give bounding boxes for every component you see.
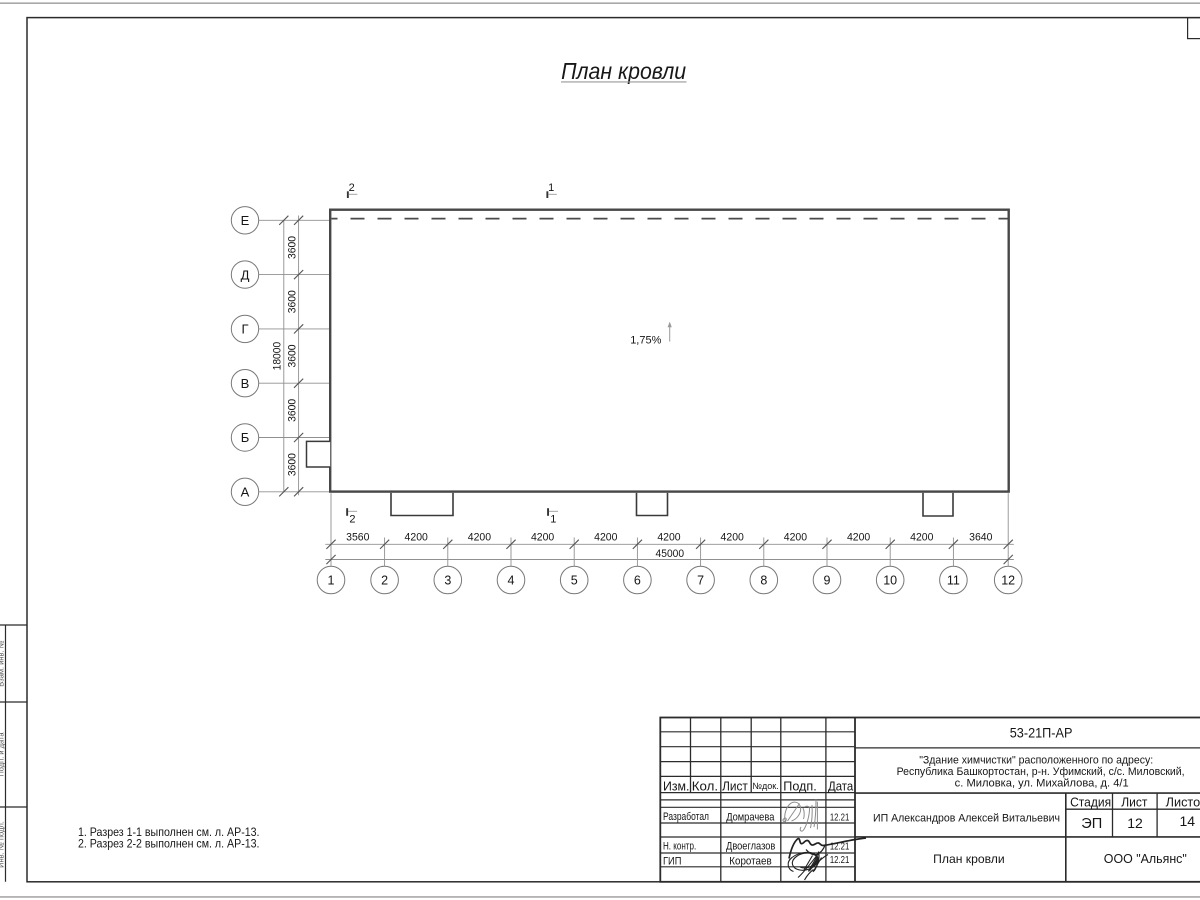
svg-text:3560: 3560 bbox=[346, 532, 369, 544]
svg-text:Кол.: Кол. bbox=[692, 778, 718, 793]
svg-text:4: 4 bbox=[508, 574, 515, 588]
svg-text:Подп.: Подп. bbox=[783, 778, 817, 793]
svg-text:1: 1 bbox=[550, 514, 556, 526]
svg-text:4200: 4200 bbox=[847, 532, 870, 544]
svg-text:8: 8 bbox=[760, 574, 767, 588]
svg-text:Д: Д bbox=[241, 267, 250, 282]
svg-text:10: 10 bbox=[883, 574, 897, 588]
svg-text:12: 12 bbox=[1001, 574, 1015, 588]
svg-text:11: 11 bbox=[947, 574, 960, 588]
svg-text:9: 9 bbox=[824, 574, 831, 588]
svg-text:3600: 3600 bbox=[286, 345, 298, 368]
svg-text:4200: 4200 bbox=[405, 532, 428, 544]
svg-text:6: 6 bbox=[634, 574, 641, 588]
svg-text:Разработал: Разработал bbox=[663, 811, 709, 823]
svg-text:53-21П-АР: 53-21П-АР bbox=[1010, 725, 1073, 741]
svg-text:Б: Б bbox=[241, 430, 250, 445]
svg-text:12: 12 bbox=[1127, 815, 1143, 831]
svg-text:4200: 4200 bbox=[531, 532, 554, 544]
svg-text:№док.: №док. bbox=[752, 781, 778, 791]
svg-text:Домрачева: Домрачева bbox=[726, 811, 774, 823]
svg-text:12.21: 12.21 bbox=[830, 855, 850, 866]
svg-text:1: 1 bbox=[328, 574, 335, 588]
svg-text:3600: 3600 bbox=[286, 399, 298, 422]
svg-text:2: 2 bbox=[349, 182, 355, 194]
svg-text:4200: 4200 bbox=[784, 532, 807, 544]
svg-text:План кровли: План кровли bbox=[933, 852, 1005, 866]
svg-text:с. Миловка, ул. Михайлова, д.: с. Миловка, ул. Михайлова, д. 4/1 bbox=[955, 777, 1129, 789]
svg-text:4200: 4200 bbox=[910, 532, 933, 544]
svg-text:А: А bbox=[241, 485, 250, 500]
svg-text:ООО "Альянс": ООО "Альянс" bbox=[1104, 851, 1187, 866]
svg-text:7: 7 bbox=[697, 574, 704, 588]
svg-text:3600: 3600 bbox=[286, 290, 298, 313]
svg-text:Взам. инв. №: Взам. инв. № bbox=[0, 640, 5, 686]
svg-text:14: 14 bbox=[1180, 813, 1196, 829]
svg-text:ИП Александров Алексей Виталье: ИП Александров Алексей Витальевич bbox=[873, 812, 1060, 824]
svg-text:Коротаев: Коротаев bbox=[729, 856, 772, 868]
svg-text:3: 3 bbox=[444, 574, 451, 588]
svg-text:2. Разрез 2-2 выполнен см. л.: 2. Разрез 2-2 выполнен см. л. АР-13. bbox=[78, 836, 260, 850]
svg-text:45000: 45000 bbox=[656, 548, 685, 560]
svg-text:Лист: Лист bbox=[722, 778, 748, 793]
svg-text:План кровли: План кровли bbox=[561, 58, 686, 84]
svg-text:4200: 4200 bbox=[657, 532, 680, 544]
svg-text:Е: Е bbox=[241, 213, 250, 228]
svg-text:Изм.: Изм. bbox=[663, 778, 689, 793]
svg-text:2: 2 bbox=[381, 574, 388, 588]
svg-text:ЭП: ЭП bbox=[1081, 816, 1102, 832]
svg-text:4200: 4200 bbox=[721, 532, 744, 544]
svg-text:1: 1 bbox=[548, 182, 554, 194]
svg-text:2: 2 bbox=[349, 514, 355, 526]
svg-text:Н. контр.: Н. контр. bbox=[663, 840, 696, 852]
svg-text:12.21: 12.21 bbox=[830, 813, 850, 824]
svg-text:В: В bbox=[241, 376, 250, 391]
svg-text:Республика Башкортостан, р-н.: Республика Башкортостан, р-н. Уфимский, … bbox=[897, 766, 1185, 778]
svg-text:Дата: Дата bbox=[828, 778, 854, 793]
svg-text:Лист: Лист bbox=[1121, 795, 1147, 809]
svg-text:Инв. № подл.: Инв. № подл. bbox=[0, 821, 5, 868]
svg-text:"Здание химчистки" расположенн: "Здание химчистки" расположенного по адр… bbox=[919, 755, 1153, 767]
svg-text:Стадия: Стадия bbox=[1070, 795, 1111, 809]
svg-text:Листов: Листов bbox=[1166, 795, 1200, 809]
svg-text:5: 5 bbox=[571, 574, 578, 588]
svg-text:3640: 3640 bbox=[969, 532, 992, 544]
svg-text:ГИП: ГИП bbox=[663, 856, 681, 868]
svg-text:4200: 4200 bbox=[594, 532, 617, 544]
svg-text:1,75%: 1,75% bbox=[630, 335, 661, 347]
svg-text:Двоеглазов: Двоеглазов bbox=[726, 840, 776, 852]
svg-text:3600: 3600 bbox=[286, 236, 298, 259]
svg-text:Подп. и дата: Подп. и дата bbox=[0, 732, 5, 777]
svg-text:18000: 18000 bbox=[271, 342, 283, 371]
svg-text:3600: 3600 bbox=[286, 453, 298, 476]
svg-text:4200: 4200 bbox=[468, 532, 491, 544]
svg-text:Г: Г bbox=[241, 322, 248, 337]
